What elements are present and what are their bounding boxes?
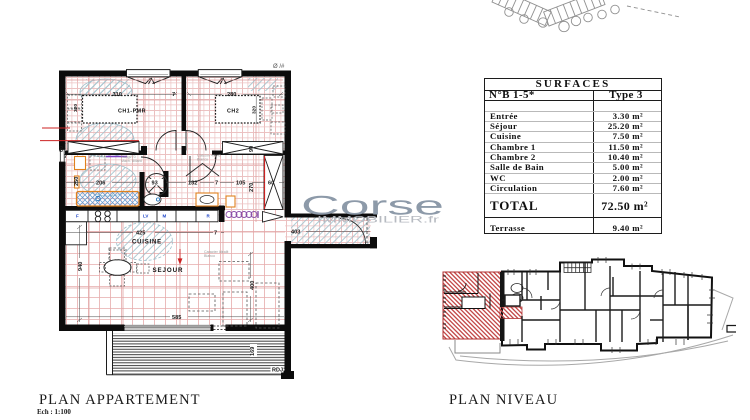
svg-text:320: 320 — [73, 104, 79, 112]
svg-text:60: 60 — [59, 146, 65, 152]
svg-text:90: 90 — [249, 146, 255, 152]
svg-text:CH2: CH2 — [227, 109, 239, 115]
svg-text:585: 585 — [172, 315, 181, 321]
svg-text:400: 400 — [250, 281, 256, 290]
svg-text:310: 310 — [113, 92, 122, 98]
svg-text:425: 425 — [136, 231, 145, 237]
svg-text:403: 403 — [291, 230, 300, 236]
svg-text:7: 7 — [215, 181, 218, 187]
svg-text:105: 105 — [236, 181, 245, 187]
svg-text:132: 132 — [188, 181, 197, 187]
svg-text:SEJOUR: SEJOUR — [153, 267, 184, 274]
svg-text:60: 60 — [268, 181, 274, 187]
svg-text:280: 280 — [227, 92, 236, 98]
svg-text:RDJ: RDJ — [272, 368, 283, 374]
svg-text:250: 250 — [74, 177, 80, 186]
svg-text:206: 206 — [96, 181, 105, 187]
svg-text:F: F — [76, 214, 79, 219]
svg-text:169: 169 — [250, 347, 256, 356]
svg-text:Bianco: Bianco — [204, 254, 215, 258]
svg-text:7: 7 — [64, 154, 67, 160]
svg-text:CH1-PMR: CH1-PMR — [118, 109, 146, 115]
svg-text:M: M — [163, 214, 167, 219]
svg-text:93: 93 — [152, 181, 158, 187]
svg-text:7: 7 — [172, 92, 175, 98]
svg-text:Ø /#: Ø /# — [273, 64, 285, 70]
svg-text:270: 270 — [249, 183, 255, 192]
svg-text:PLAN APPARTEMENT: PLAN APPARTEMENT — [39, 392, 201, 408]
svg-text:LV: LV — [143, 214, 148, 219]
svg-text:Ech : 1:100: Ech : 1:100 — [37, 408, 71, 416]
svg-text:Blanco: Blanco — [197, 158, 208, 162]
svg-text:PLAN NIVEAU: PLAN NIVEAU — [449, 392, 558, 408]
svg-text:Mach. Billard: Mach. Billard — [121, 159, 142, 163]
svg-text:IMMOBILIER.fr: IMMOBILIER.fr — [317, 215, 439, 226]
svg-text:940: 940 — [78, 262, 84, 271]
svg-text:7: 7 — [214, 231, 217, 237]
svg-text:CUISINE: CUISINE — [132, 240, 162, 246]
